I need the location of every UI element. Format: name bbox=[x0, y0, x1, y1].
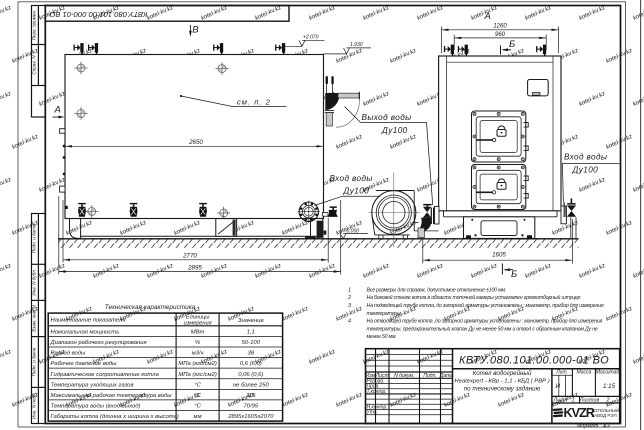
svg-text:+2.070: +2.070 bbox=[303, 34, 319, 40]
svg-text:Б: Б bbox=[509, 39, 515, 50]
svg-text:температуры.: температуры. bbox=[367, 311, 402, 317]
svg-text:Рабочее давление воды: Рабочее давление воды bbox=[51, 361, 118, 367]
svg-text:КВТУ.080.101.00.000-01 ВО: КВТУ.080.101.00.000-01 ВО bbox=[50, 10, 148, 19]
svg-text:Подп. и дата: Подп. и дата bbox=[31, 347, 36, 376]
svg-text:960: 960 bbox=[495, 32, 506, 38]
svg-text:Формат: Формат bbox=[577, 424, 599, 430]
svg-text:Дата: Дата bbox=[439, 373, 453, 379]
svg-text:Вход воды: Вход воды bbox=[564, 152, 607, 161]
svg-text:Выход воды: Выход воды bbox=[362, 113, 412, 122]
svg-text:И: И bbox=[556, 383, 561, 390]
svg-text:А3: А3 bbox=[602, 424, 610, 430]
svg-text:Расход воды: Расход воды bbox=[51, 351, 87, 357]
svg-text:1: 1 bbox=[572, 398, 575, 404]
svg-text:температуры, предохранительный: температуры, предохранительный клапан Ду… bbox=[367, 325, 598, 332]
svg-text:Инв. N дубл.: Инв. N дубл. bbox=[31, 269, 36, 296]
svg-text:°С: °С bbox=[194, 382, 201, 388]
svg-text:м3/ч: м3/ч bbox=[192, 351, 204, 357]
svg-text:КВТУ.080.101.00.000-01 ВО: КВТУ.080.101.00.000-01 ВО bbox=[459, 355, 609, 367]
svg-text:мм: мм bbox=[194, 414, 202, 420]
svg-text:2895х1605х2070: 2895х1605х2070 bbox=[227, 414, 274, 420]
svg-text:МВт: МВт bbox=[191, 329, 205, 335]
svg-text:Гидравлическое сопротивление к: Гидравлическое сопротивление котла bbox=[51, 372, 160, 378]
svg-text:На подводящей трубе котла, д: На подводящей трубе котла, до запорной а… bbox=[367, 302, 604, 309]
svg-text:50-100: 50-100 bbox=[242, 340, 261, 346]
svg-text:А: А bbox=[484, 11, 491, 22]
svg-text:А: А bbox=[54, 105, 61, 116]
svg-text:Листов: Листов bbox=[579, 398, 600, 404]
svg-text:115: 115 bbox=[246, 393, 256, 399]
svg-text:2: 2 bbox=[606, 398, 610, 404]
svg-text:Взам. инв. N: Взам. инв. N bbox=[31, 304, 36, 331]
svg-text:1.930: 1.930 bbox=[350, 42, 363, 48]
svg-text:4: 4 bbox=[348, 319, 351, 325]
svg-text:На отводящей трубе котла ,до з: На отводящей трубе котла ,до запорной ар… bbox=[367, 318, 603, 325]
svg-text:2895: 2895 bbox=[187, 264, 202, 271]
svg-text:1,1: 1,1 bbox=[247, 329, 255, 335]
svg-text:2: 2 bbox=[347, 295, 351, 301]
svg-text:Подп. и дата: Подп. и дата bbox=[31, 224, 36, 253]
svg-text:Ду100: Ду100 bbox=[572, 165, 599, 174]
svg-text:1:15: 1:15 bbox=[603, 383, 616, 390]
svg-text:не более 250: не более 250 bbox=[233, 382, 270, 388]
svg-text:Т.контр.: Т.контр. bbox=[367, 389, 387, 395]
svg-text:Все размеры для справок, допус: Все размеры для справок, допустимое откл… bbox=[367, 287, 507, 293]
svg-text:N докум.: N докум. bbox=[394, 373, 414, 379]
svg-text:Диапазон рабочего регулировани: Диапазон рабочего регулирования bbox=[50, 340, 148, 346]
svg-text:Масштаб: Масштаб bbox=[596, 370, 620, 376]
svg-text:Ду100: Ду100 bbox=[381, 126, 408, 135]
svg-text:измерения: измерения bbox=[184, 320, 212, 326]
svg-text:Котел водогрейный: Котел водогрейный bbox=[473, 370, 532, 377]
svg-text:1260: 1260 bbox=[493, 24, 507, 30]
svg-text:Масса: Масса bbox=[577, 370, 592, 376]
svg-text:0.000: 0.000 bbox=[347, 228, 360, 234]
svg-text:70/95: 70/95 bbox=[243, 404, 258, 410]
svg-text:см. п. 2: см. п. 2 bbox=[237, 98, 271, 107]
svg-text:Значение: Значение bbox=[238, 318, 265, 324]
svg-text:МПа (кгс/см2): МПа (кгс/см2) bbox=[178, 361, 217, 367]
svg-text:°С: °С bbox=[194, 393, 201, 399]
svg-text:по техническому заданию: по техническому заданию bbox=[464, 385, 541, 392]
svg-text:2770: 2770 bbox=[182, 253, 197, 260]
svg-text:0,06 (0,6): 0,06 (0,6) bbox=[238, 372, 263, 378]
svg-text:МПа (кгс/см2): МПа (кгс/см2) bbox=[178, 372, 217, 378]
svg-text:Техническая характеристика: Техническая характеристика bbox=[105, 304, 196, 311]
svg-text:Номинальная мощность: Номинальная мощность bbox=[51, 329, 120, 335]
svg-text:0,6 (6,0): 0,6 (6,0) bbox=[240, 361, 262, 367]
svg-text:ЗАВОД РЭП: ЗАВОД РЭП bbox=[592, 413, 617, 418]
svg-text:1605: 1605 bbox=[492, 252, 506, 259]
svg-text:Максимальная рабочая температу: Максимальная рабочая температура воды bbox=[51, 393, 173, 399]
svg-text:Утв.: Утв. bbox=[367, 410, 378, 416]
svg-text:%: % bbox=[195, 340, 200, 346]
svg-text:Heatexpert - КВр - 1,1 - КБД (: Heatexpert - КВр - 1,1 - КБД ( РВР ) bbox=[454, 379, 549, 385]
svg-text:Вход воды: Вход воды bbox=[330, 174, 373, 183]
svg-text:KVZR: KVZR bbox=[564, 406, 595, 420]
svg-text:Ду100: Ду100 bbox=[343, 187, 370, 196]
svg-text:2650: 2650 bbox=[188, 139, 203, 146]
svg-text:Подп.: Подп. bbox=[423, 373, 436, 379]
svg-text:Наименование показателя: Наименование показателя bbox=[51, 318, 127, 324]
svg-text:38: 38 bbox=[248, 351, 255, 357]
svg-text:Инв. N подл.: Инв. N подл. bbox=[31, 392, 36, 419]
svg-text:Б: Б bbox=[511, 269, 517, 280]
svg-text:На боковой стенке котла в обла: На боковой стенке котла в области топочн… bbox=[367, 294, 581, 301]
svg-text:°С: °С bbox=[194, 404, 201, 410]
svg-text:Перв. примен.: Перв. примен. bbox=[31, 10, 36, 41]
svg-text:Лист: Лист bbox=[553, 398, 568, 404]
svg-text:Габариты котла (длинна х ширин: Габариты котла (длинна х ширина х высота… bbox=[51, 414, 179, 420]
svg-text:Лит.: Лит. bbox=[555, 370, 568, 376]
svg-text:3: 3 bbox=[348, 303, 351, 309]
svg-text:менее 50 мм.: менее 50 мм. bbox=[367, 334, 397, 340]
svg-text:Температура уходящих газов: Температура уходящих газов bbox=[51, 382, 134, 388]
svg-text:1: 1 bbox=[348, 287, 351, 293]
svg-text:Температура воды (вход/выход): Температура воды (вход/выход) bbox=[51, 404, 141, 410]
svg-text:В: В bbox=[192, 24, 199, 35]
svg-text:Справ. N: Справ. N bbox=[31, 55, 36, 75]
